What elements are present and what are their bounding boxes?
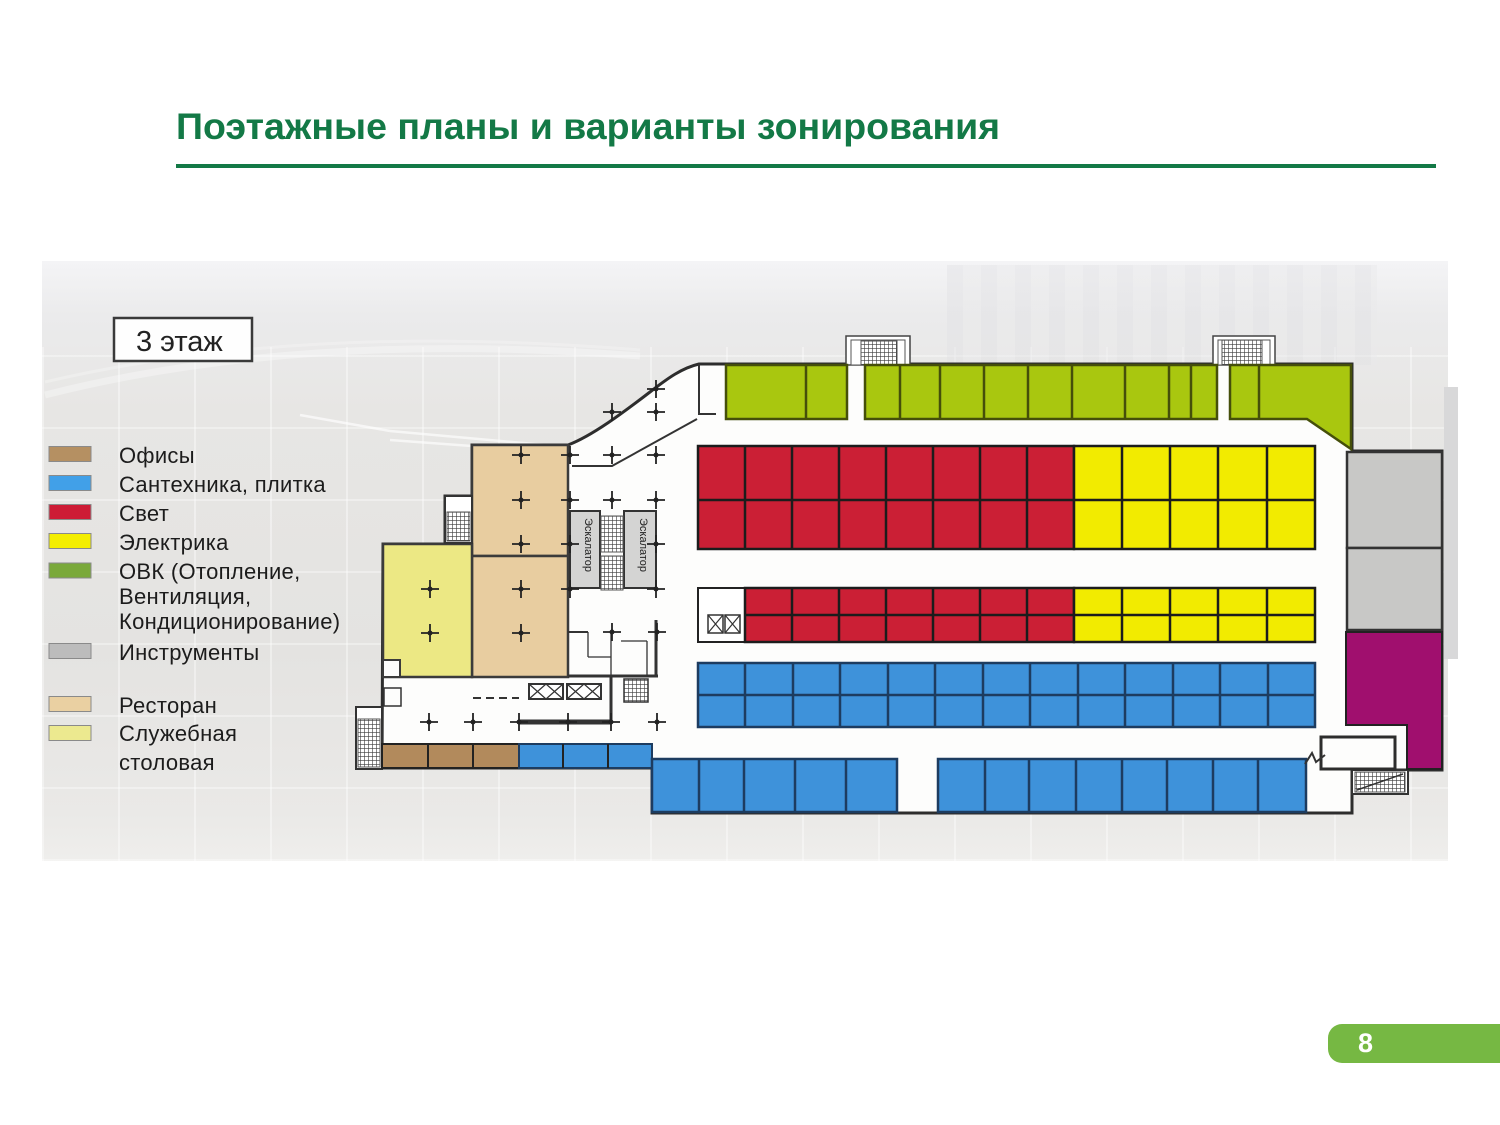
svg-text:Эскалатор: Эскалатор (637, 518, 649, 572)
svg-text:столовая: столовая (119, 750, 215, 775)
svg-text:Свет: Свет (119, 501, 169, 526)
svg-text:Электрика: Электрика (119, 530, 229, 555)
svg-text:Инструменты: Инструменты (119, 640, 259, 665)
svg-text:ОВК (Отопление,: ОВК (Отопление, (119, 559, 301, 584)
svg-text:Ресторан: Ресторан (119, 693, 217, 718)
svg-text:Офисы: Офисы (119, 443, 195, 468)
svg-text:3 этаж: 3 этаж (136, 326, 223, 358)
svg-text:Вентиляция,: Вентиляция, (119, 584, 251, 609)
svg-text:Служебная: Служебная (119, 721, 237, 746)
svg-text:Эскалатор: Эскалатор (582, 518, 594, 572)
svg-text:Кондиционирование): Кондиционирование) (119, 609, 340, 634)
svg-text:Сантехника, плитка: Сантехника, плитка (119, 472, 326, 497)
